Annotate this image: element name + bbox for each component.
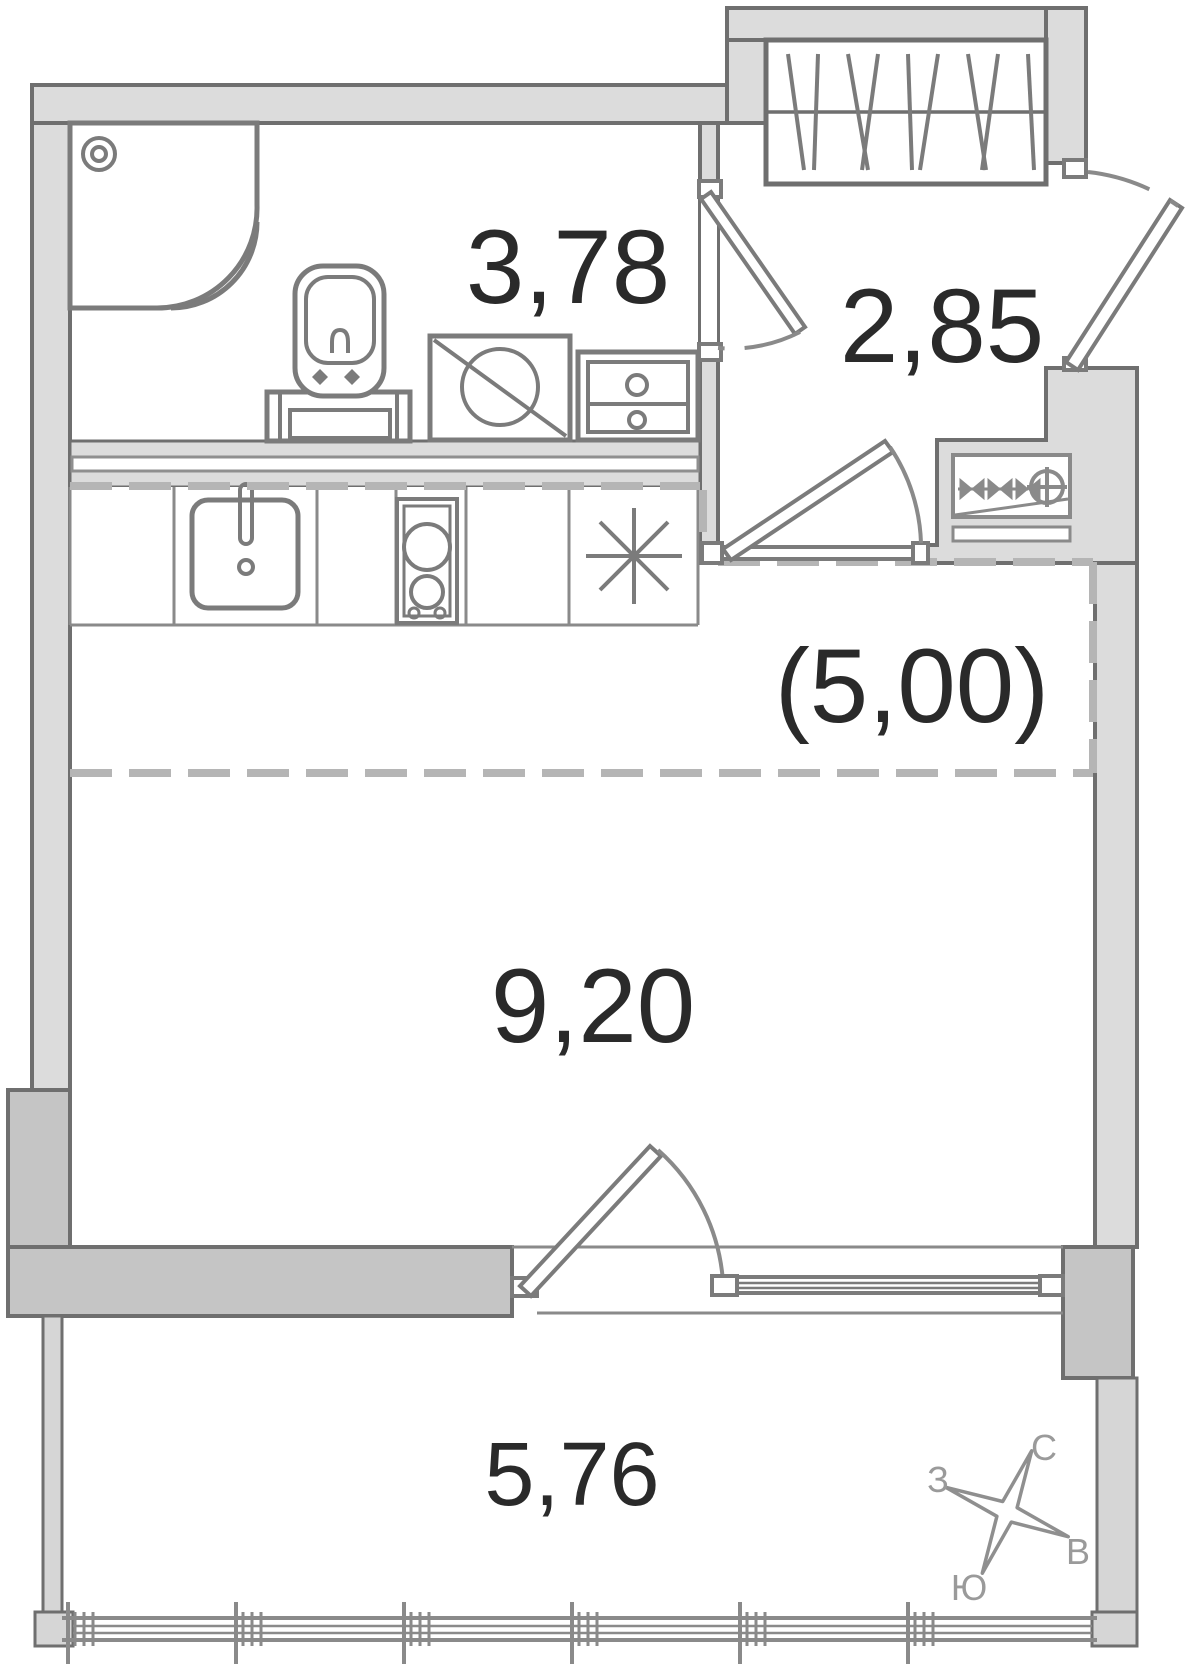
wall-niche-right <box>1046 8 1086 163</box>
toilet-symbol <box>267 266 410 441</box>
entrance-door-post-top <box>1064 160 1086 177</box>
wall-room-balcony <box>8 1247 512 1316</box>
compass-east-label: В <box>1066 1531 1090 1572</box>
cabinet-knob-top <box>627 375 647 395</box>
wall-niche-top <box>727 8 1086 40</box>
bathroom-door-post-bottom <box>699 344 721 360</box>
wall-balcony-left <box>43 1316 62 1618</box>
floor-plan-page: 3,78 2,85 (5,00) 9,20 5,76 С З В Ю <box>0 0 1192 1664</box>
balcony-door-window <box>512 1146 1063 1296</box>
compass-west-label: З <box>927 1459 949 1500</box>
kitchen-door-post-right <box>913 543 928 563</box>
kitchen-door <box>702 441 928 563</box>
area-label-bathroom: 3,78 <box>466 209 670 326</box>
fridge-symbol <box>586 508 682 604</box>
wall-balcony-right <box>1097 1378 1137 1618</box>
wall-corner-block <box>1063 1247 1133 1378</box>
window-glazing <box>737 1277 1040 1293</box>
entrance-door-leaf <box>1066 200 1182 370</box>
bathroom-wall-slot <box>72 457 698 471</box>
window-cap-right <box>1040 1276 1063 1295</box>
compass-rose: С З В Ю <box>927 1427 1090 1608</box>
kitchen-door-leaf <box>723 441 893 560</box>
compass-star-icon <box>946 1451 1068 1573</box>
wall-left-pier <box>8 1090 70 1247</box>
wardrobe-symbol <box>766 40 1046 184</box>
area-label-balcony: 5,76 <box>484 1425 659 1525</box>
toilet-tank-lid <box>290 410 390 438</box>
bathroom-door <box>699 181 805 360</box>
wall-right <box>1095 563 1137 1247</box>
wall-balcony-foot-right <box>1092 1612 1137 1646</box>
entrance-door <box>1064 160 1182 370</box>
entrance-door-arc <box>1088 172 1178 206</box>
shaft-slot <box>953 527 1070 541</box>
cabinet-knob-bottom <box>629 412 645 428</box>
bathroom-door-arc <box>718 332 800 349</box>
kitchen-counter <box>70 484 698 625</box>
shower-symbol <box>70 123 257 308</box>
compass-south-label: Ю <box>951 1567 987 1608</box>
area-label-kitchen-zone: (5,00) <box>775 628 1049 745</box>
bathroom-cabinet-symbol <box>578 352 698 440</box>
floor-plan-svg: 3,78 2,85 (5,00) 9,20 5,76 С З В Ю <box>0 0 1192 1664</box>
wall-top <box>32 85 727 123</box>
utility-shaft <box>953 455 1070 541</box>
kitchen-door-arc <box>890 447 921 543</box>
balcony-door-arc <box>658 1150 723 1282</box>
area-label-living-room: 9,20 <box>491 948 695 1065</box>
washing-machine-symbol <box>430 336 570 440</box>
balcony-door-leaf <box>520 1146 661 1296</box>
window-cap-left <box>712 1276 737 1295</box>
wall-left <box>32 85 70 1090</box>
toilet-flush-button <box>332 330 348 353</box>
compass-north-label: С <box>1031 1427 1057 1468</box>
shower-tray-outline <box>70 123 257 308</box>
kitchen-door-post-left <box>702 543 722 563</box>
area-label-hallway: 2,85 <box>840 268 1044 385</box>
balcony-glazing <box>62 1602 1097 1664</box>
